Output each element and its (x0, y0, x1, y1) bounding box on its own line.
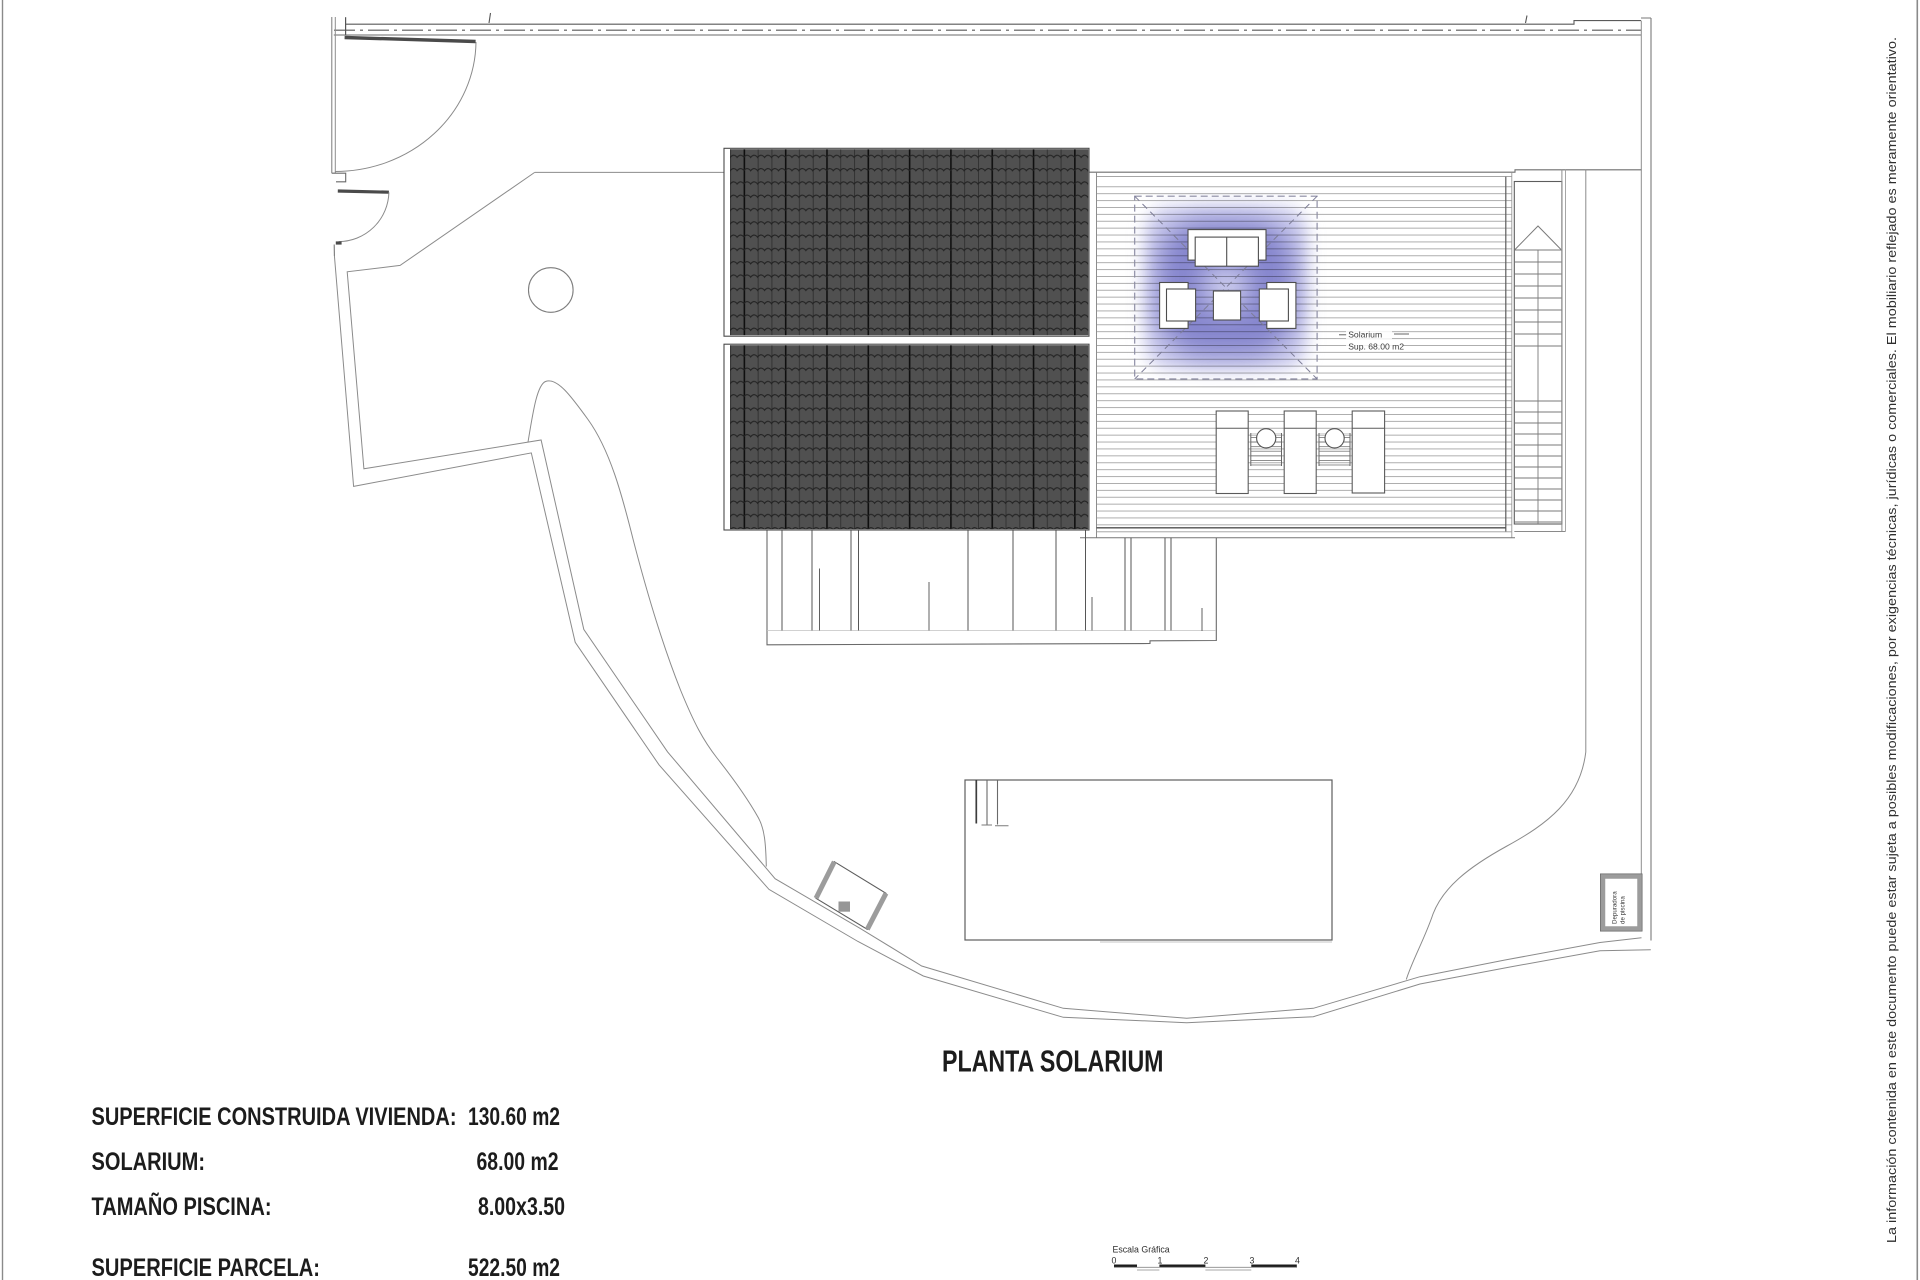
svg-text:PLANTA SOLARIUM: PLANTA SOLARIUM (942, 1045, 1164, 1079)
svg-text:68.00 m2: 68.00 m2 (477, 1148, 559, 1176)
svg-text:Solarium: Solarium (1348, 330, 1382, 340)
svg-text:4: 4 (1295, 1256, 1300, 1266)
svg-text:8.00x3.50: 8.00x3.50 (478, 1193, 565, 1221)
svg-text:SUPERFICIE PARCELA:: SUPERFICIE PARCELA: (92, 1254, 321, 1280)
svg-text:0: 0 (1112, 1256, 1117, 1266)
svg-text:de piscina: de piscina (1620, 896, 1627, 924)
svg-text:3: 3 (1250, 1256, 1255, 1266)
svg-text:522.50 m2: 522.50 m2 (468, 1254, 560, 1280)
svg-text:TAMAÑO PISCINA:: TAMAÑO PISCINA: (92, 1191, 272, 1221)
svg-text:SOLARIUM:: SOLARIUM: (92, 1148, 206, 1176)
svg-text:Escala Gráfica: Escala Gráfica (1113, 1245, 1170, 1255)
svg-text:SUPERFICIE CONSTRUIDA VIVIENDA: SUPERFICIE CONSTRUIDA VIVIENDA: (92, 1103, 457, 1131)
svg-text:130.60 m2: 130.60 m2 (468, 1103, 560, 1131)
svg-text:Depuradora: Depuradora (1612, 891, 1619, 924)
svg-text:2: 2 (1204, 1256, 1209, 1266)
svg-text:Sup. 68.00 m2: Sup. 68.00 m2 (1348, 341, 1404, 351)
svg-text:1: 1 (1158, 1256, 1163, 1266)
svg-text:La información contenida en es: La información contenida en este documen… (1884, 37, 1899, 1243)
